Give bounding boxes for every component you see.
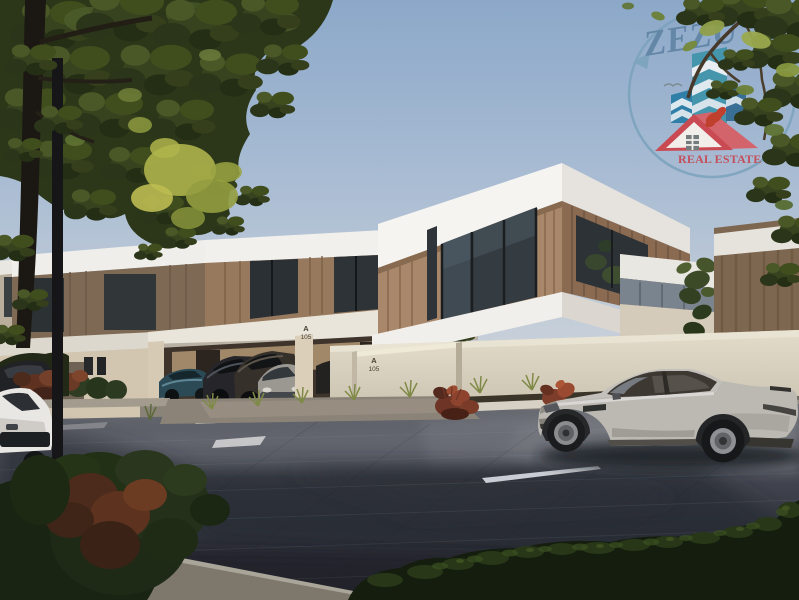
- svg-text:105: 105: [301, 334, 312, 341]
- svg-text:A: A: [303, 324, 309, 333]
- svg-text:105: 105: [369, 366, 380, 373]
- svg-text:A: A: [371, 356, 377, 365]
- svg-text:REAL ESTATE: REAL ESTATE: [678, 152, 761, 166]
